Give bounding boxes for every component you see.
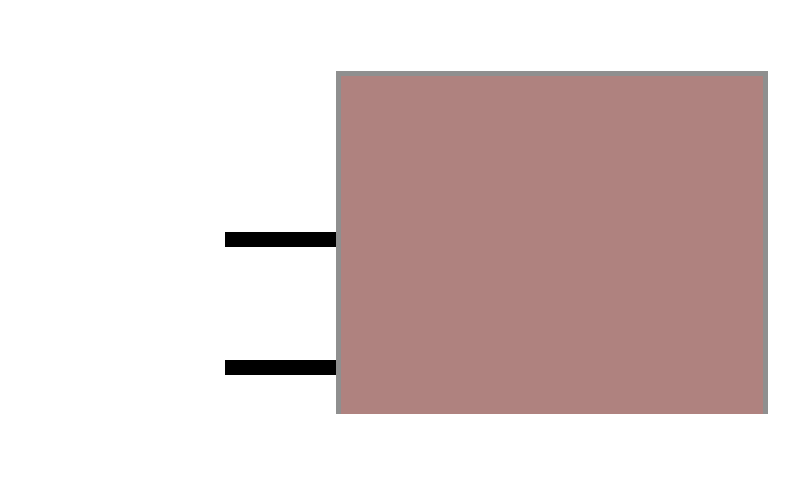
plug-body-fill bbox=[341, 76, 763, 414]
top-prong bbox=[225, 232, 336, 247]
plug-drawing bbox=[0, 0, 800, 500]
drawing-canvas bbox=[0, 0, 800, 500]
bottom-prong bbox=[225, 360, 336, 375]
